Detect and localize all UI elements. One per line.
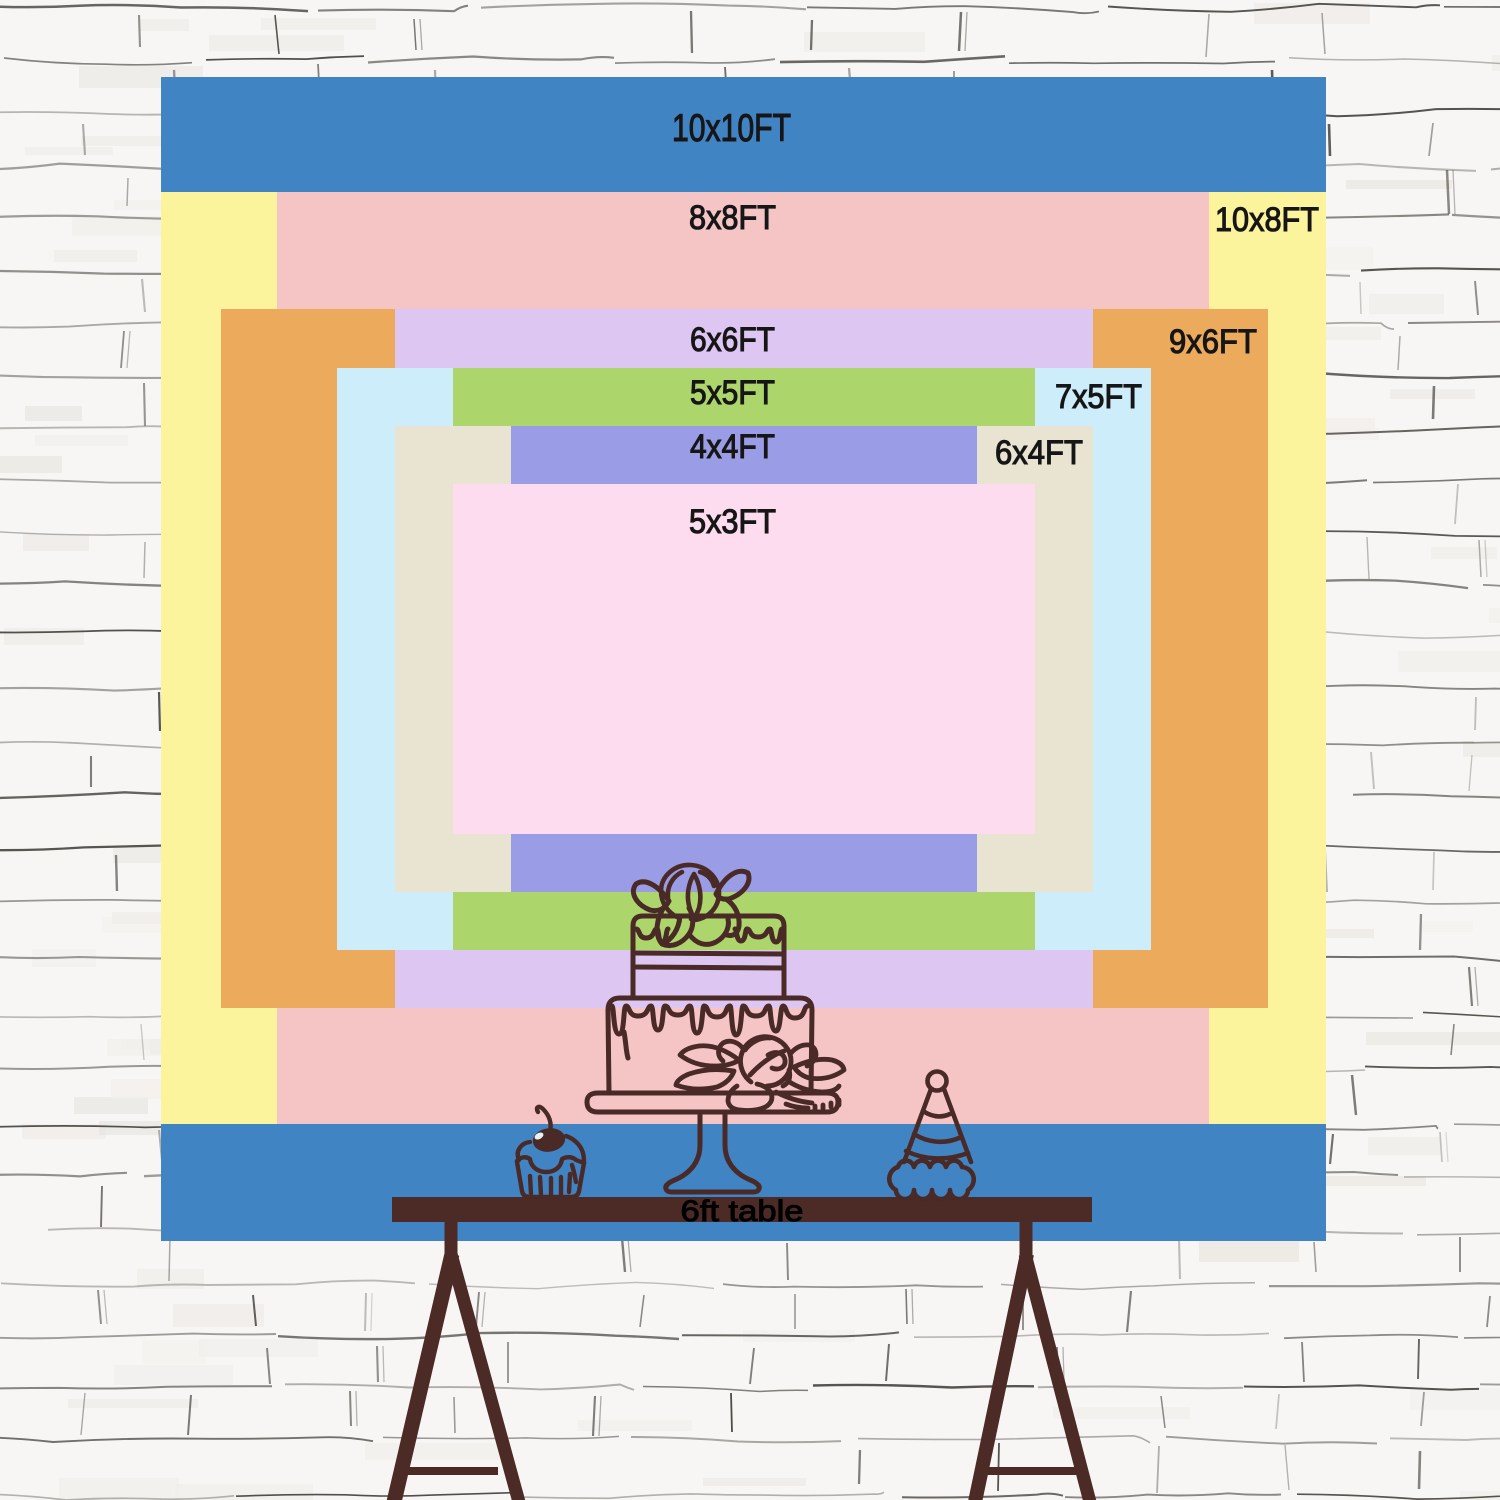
svg-text:8x8FT: 8x8FT [689,199,776,237]
svg-text:9x6FT: 9x6FT [1169,323,1257,361]
svg-text:10x8FT: 10x8FT [1215,201,1319,239]
svg-text:5x3FT: 5x3FT [689,503,776,541]
svg-text:5x5FT: 5x5FT [690,374,775,412]
svg-text:6x6FT: 6x6FT [690,321,775,359]
svg-text:6x4FT: 6x4FT [995,434,1083,472]
svg-text:4x4FT: 4x4FT [690,428,775,466]
svg-text:10x10FT: 10x10FT [672,107,791,150]
svg-text:6ft table: 6ft table [681,1195,804,1228]
svg-text:7x5FT: 7x5FT [1055,378,1142,416]
